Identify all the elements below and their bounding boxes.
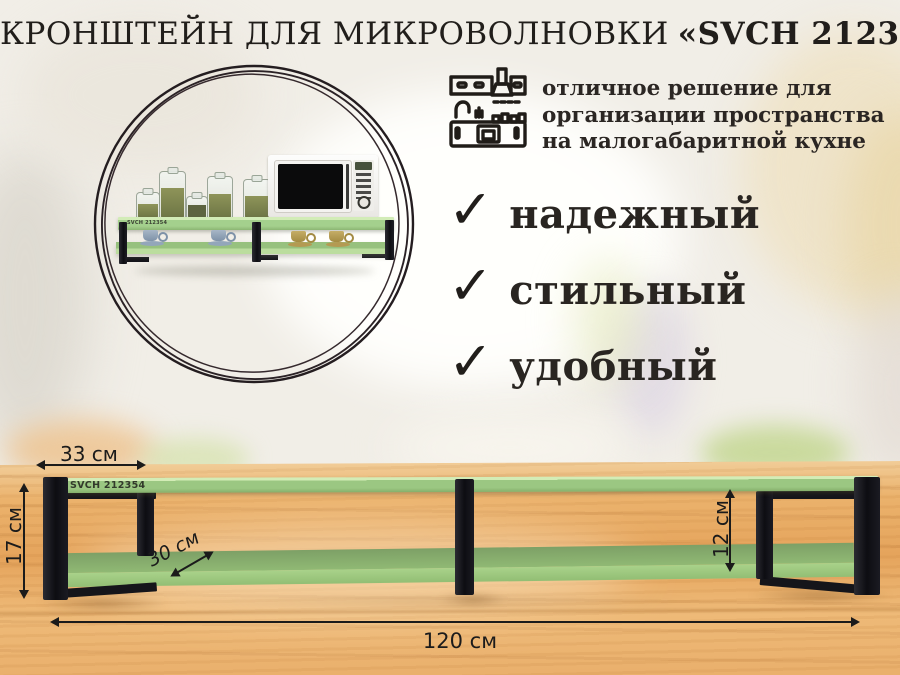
page-title: КРОНШТЕЙН ДЛЯ МИКРОВОЛНОВКИ«SVCH 212354»	[0, 16, 900, 52]
dimension-depth-arrow	[38, 464, 144, 466]
glass-jar	[243, 179, 271, 220]
dimension-width-arrow	[52, 621, 858, 623]
dimension-width-label: 120 см	[400, 629, 520, 653]
tea-cup	[140, 229, 166, 248]
check-icon: ✓	[448, 335, 493, 389]
tea-cup	[288, 230, 314, 249]
feature-label: удобный	[509, 343, 717, 390]
bracket-inner-post	[137, 490, 154, 556]
shelf-bracket-photo	[385, 220, 394, 260]
tea-cup	[208, 229, 234, 248]
feature-label: надежный	[509, 191, 760, 238]
product-card: КРОНШТЕЙН ДЛЯ МИКРОВОЛНОВКИ«SVCH 212354»…	[0, 0, 900, 675]
kitchen-icon	[447, 64, 529, 150]
glass-jar	[207, 176, 233, 220]
dimension-gap-arrow	[729, 491, 731, 570]
feature-row: ✓ надежный	[448, 182, 760, 246]
shelf-bracket-photo	[119, 222, 127, 264]
glass-jar	[136, 192, 160, 220]
microwave-door	[274, 160, 352, 213]
bracket-outer-post	[43, 477, 68, 600]
bracket-inner-post	[756, 491, 773, 579]
bracket-center-post	[455, 479, 474, 595]
background-blur-blob	[0, 150, 90, 450]
microwave	[268, 155, 378, 218]
shelf-bracket-photo	[252, 222, 261, 262]
dimension-height-arrow	[23, 485, 25, 597]
feature-row: ✓ удобный	[448, 334, 717, 398]
shelf-wall-shadow	[135, 266, 375, 276]
glass-jar	[159, 171, 186, 220]
feature-row: ✓ стильный	[448, 258, 746, 322]
background-blur-blob	[855, 290, 900, 480]
check-icon: ✓	[448, 259, 493, 313]
feature-label: стильный	[509, 267, 746, 314]
tea-cup	[326, 230, 352, 249]
shelf-model-print: SVCH 212354	[127, 220, 167, 226]
title-model: «SVCH 212354»	[678, 16, 900, 52]
microwave-control-panel	[353, 160, 374, 211]
intro-text: отличное решение для организации простра…	[542, 76, 890, 156]
check-icon: ✓	[448, 183, 493, 237]
title-product-type: КРОНШТЕЙН ДЛЯ МИКРОВОЛНОВКИ	[0, 16, 669, 52]
dimension-depth-label: 33 см	[60, 442, 118, 466]
bracket-outer-post	[854, 477, 880, 595]
shelf-shadow	[160, 596, 720, 607]
shelf-model-print: SVCH 212354	[70, 480, 145, 491]
